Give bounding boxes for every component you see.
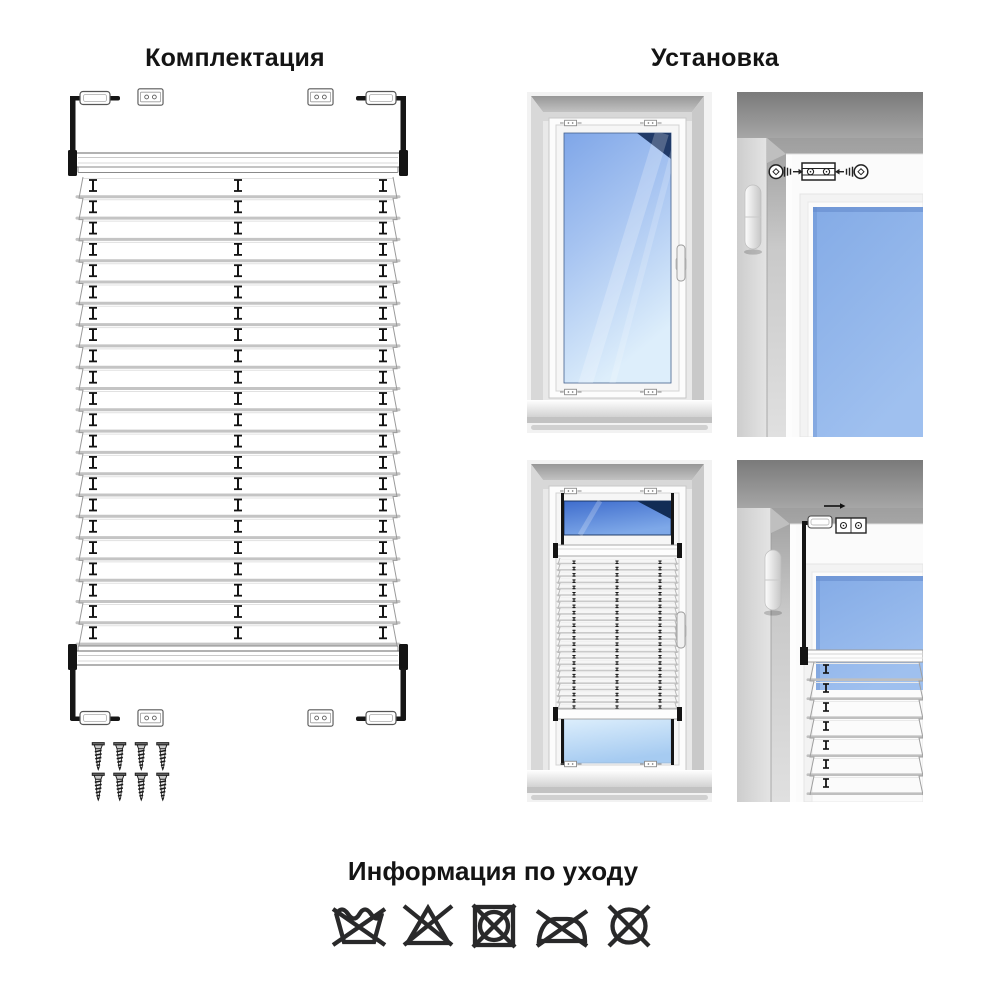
window-handle (677, 612, 685, 648)
tension-rod (561, 719, 564, 765)
installation-photo-clip-detail (737, 92, 923, 437)
wall-top (737, 92, 923, 138)
glass-strip-top (564, 501, 671, 535)
installation-photo-window-with-blind (527, 460, 712, 802)
screw-icon (135, 773, 147, 801)
screw-icon (114, 773, 126, 801)
window-sill (527, 400, 712, 430)
care-symbols-row (330, 900, 654, 950)
mounting-clip-bottom-left (138, 710, 163, 726)
screw-icon (92, 773, 104, 801)
screw-icon (157, 743, 169, 771)
installation-photo-bracket-detail (737, 460, 923, 802)
do-not-tumble-dry-icon (468, 900, 520, 950)
wall-left (737, 508, 771, 802)
window-hinge (764, 550, 782, 616)
tension-bracket-bottom-left (70, 668, 120, 725)
tension-bracket-bottom-right (356, 668, 406, 725)
wall-reveal-left (531, 464, 543, 784)
mounting-clip-top-left (138, 89, 163, 105)
mounting-clip (836, 518, 866, 533)
blind-head-rail (800, 647, 923, 665)
blind-bottom-rail (553, 707, 682, 721)
wall-top (737, 460, 923, 508)
pleated-fabric (76, 177, 401, 646)
tension-bracket-top-left (70, 92, 120, 161)
tension-rod (561, 493, 564, 547)
window-sill (527, 770, 712, 800)
installation-section-title: Установка (505, 44, 925, 73)
product-info-sheet: Комплектация Установка (0, 0, 1000, 1000)
window-glass (564, 133, 674, 385)
screw-icon (157, 773, 169, 801)
wall-reveal-top (531, 96, 704, 112)
wall-reveal-left (531, 96, 543, 414)
equipment-drawing (30, 78, 480, 823)
do-not-dry-clean-icon (604, 900, 654, 950)
screws-set (92, 743, 169, 801)
wall-left (737, 138, 767, 437)
care-section-title: Информация по уходу (293, 856, 693, 887)
blind-bottom-rail (68, 644, 408, 670)
do-not-bleach-icon (402, 900, 454, 950)
wall-reveal-right (692, 464, 704, 784)
do-not-wash-icon (330, 900, 388, 950)
screw-icon (114, 743, 126, 771)
window-glass (816, 576, 923, 690)
window-glass (813, 207, 923, 437)
equipment-section-title: Комплектация (15, 44, 455, 73)
window-hinge (744, 185, 762, 255)
blind-top-rail (68, 150, 408, 176)
blind-head-rail (553, 543, 682, 558)
screw-icon (135, 743, 147, 771)
tension-rod (671, 719, 674, 765)
glass-strip-bottom (564, 719, 671, 763)
do-not-iron-icon (534, 900, 590, 950)
tension-rod (671, 493, 674, 547)
window-handle (677, 245, 685, 281)
mounting-clip-top-right (308, 89, 333, 105)
installation-photo-window (527, 92, 712, 433)
wall-reveal-right (692, 96, 704, 414)
tension-bracket-top-right (356, 92, 406, 161)
screw-icon (92, 743, 104, 771)
wall-reveal-top (531, 464, 704, 480)
mounting-clip-bottom-right (308, 710, 333, 726)
